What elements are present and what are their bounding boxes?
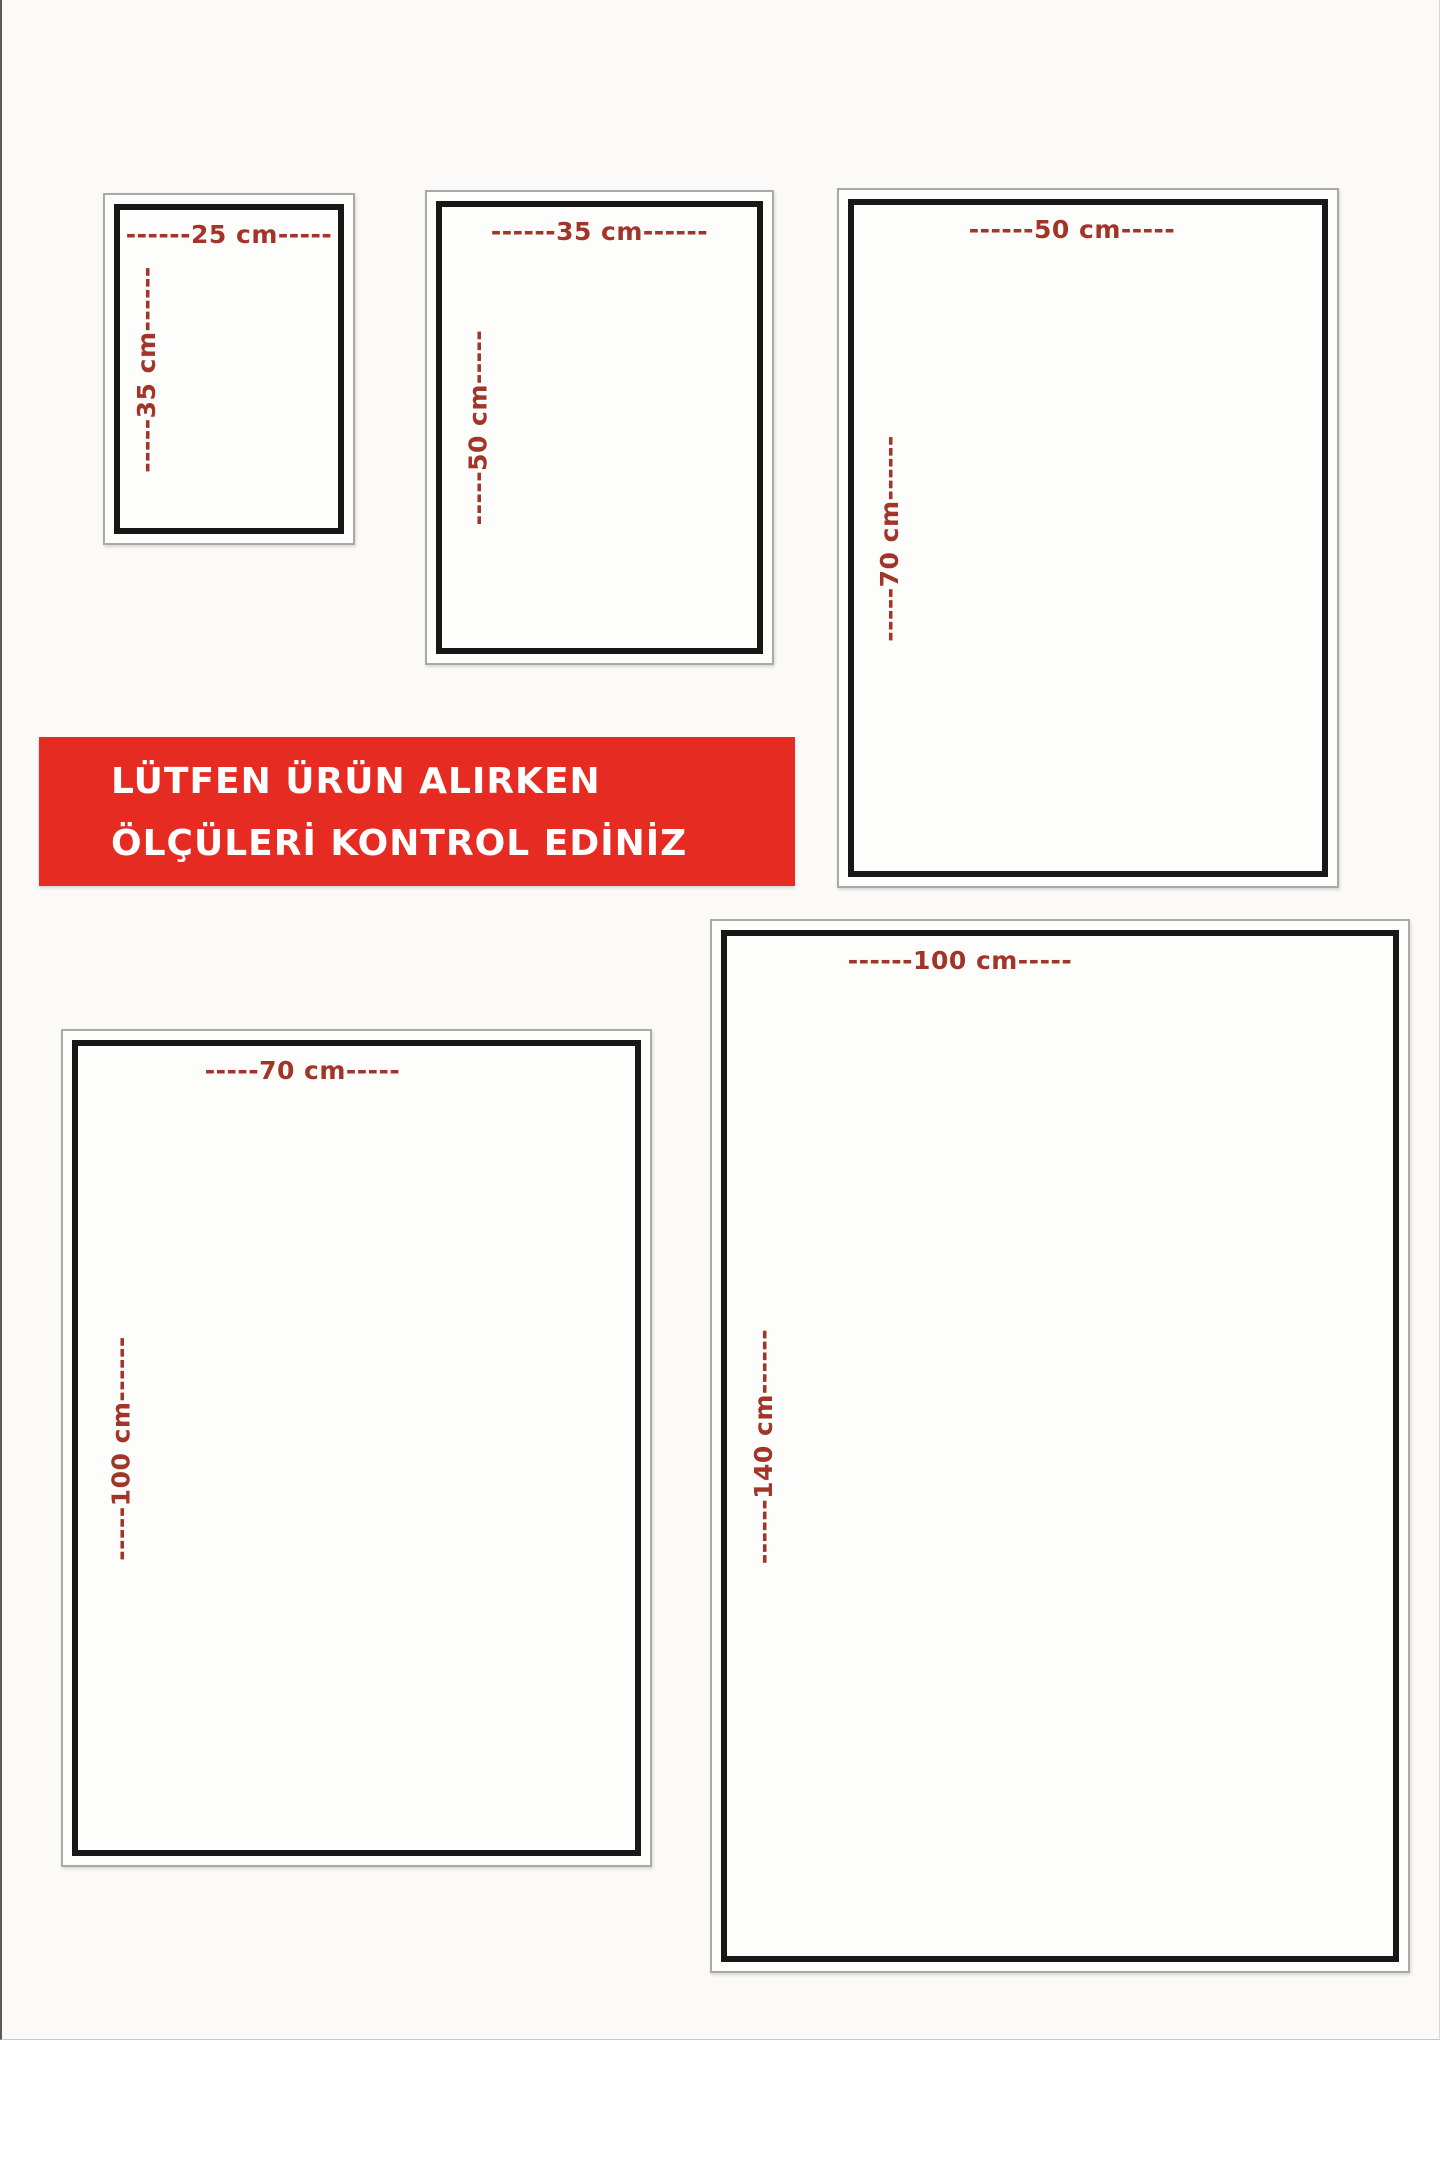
size-box-25x35-border: ------25 cm----- -----35 cm------ — [114, 204, 344, 534]
size-box-100x140: ------100 cm----- ------140 cm------ — [710, 919, 1410, 1973]
warning-banner-line1: LÜTFEN ÜRÜN ALIRKEN — [111, 751, 795, 813]
size-box-25x35: ------25 cm----- -----35 cm------ — [103, 193, 355, 545]
height-dimension-label-35cm: -----35 cm------ — [132, 266, 161, 473]
height-dimension-column: -----100 cm------ — [103, 1046, 139, 1850]
size-box-70x100-border: -----70 cm----- -----100 cm------ — [72, 1040, 641, 1856]
height-dimension-column: -----70 cm------ — [871, 205, 907, 871]
width-dimension-label-50cm: ------50 cm----- — [969, 215, 1176, 244]
height-dimension-column: -----50 cm----- — [460, 207, 496, 648]
size-box-70x100: -----70 cm----- -----100 cm------ — [61, 1029, 652, 1867]
height-dimension-label-140cm: ------140 cm------ — [750, 1328, 779, 1563]
size-box-100x140-border: ------100 cm----- ------140 cm------ — [721, 930, 1399, 1962]
width-dimension-label-35cm: ------35 cm------ — [491, 217, 708, 246]
size-box-35x50-border: ------35 cm------ -----50 cm----- — [436, 201, 763, 654]
size-box-35x50: ------35 cm------ -----50 cm----- — [425, 190, 774, 665]
height-dimension-column: ------140 cm------ — [746, 936, 782, 1956]
warning-banner-line2: ÖLÇÜLERİ KONTROL EDİNİZ — [111, 813, 795, 875]
height-dimension-column: -----35 cm------ — [128, 210, 164, 528]
height-dimension-label-100cm: -----100 cm------ — [107, 1336, 136, 1560]
measurement-warning-banner: LÜTFEN ÜRÜN ALIRKEN ÖLÇÜLERİ KONTROL EDİ… — [39, 737, 795, 886]
size-box-50x70: ------50 cm----- -----70 cm------ — [837, 188, 1339, 888]
width-dimension-label-70cm: -----70 cm----- — [205, 1056, 401, 1085]
size-box-50x70-border: ------50 cm----- -----70 cm------ — [848, 199, 1328, 877]
width-dimension-label-100cm: ------100 cm----- — [848, 946, 1072, 975]
height-dimension-label-50cm: -----50 cm----- — [464, 330, 493, 526]
height-dimension-label-70cm: -----70 cm------ — [875, 435, 904, 642]
size-guide-canvas: ------25 cm----- -----35 cm------ ------… — [0, 0, 1440, 2040]
